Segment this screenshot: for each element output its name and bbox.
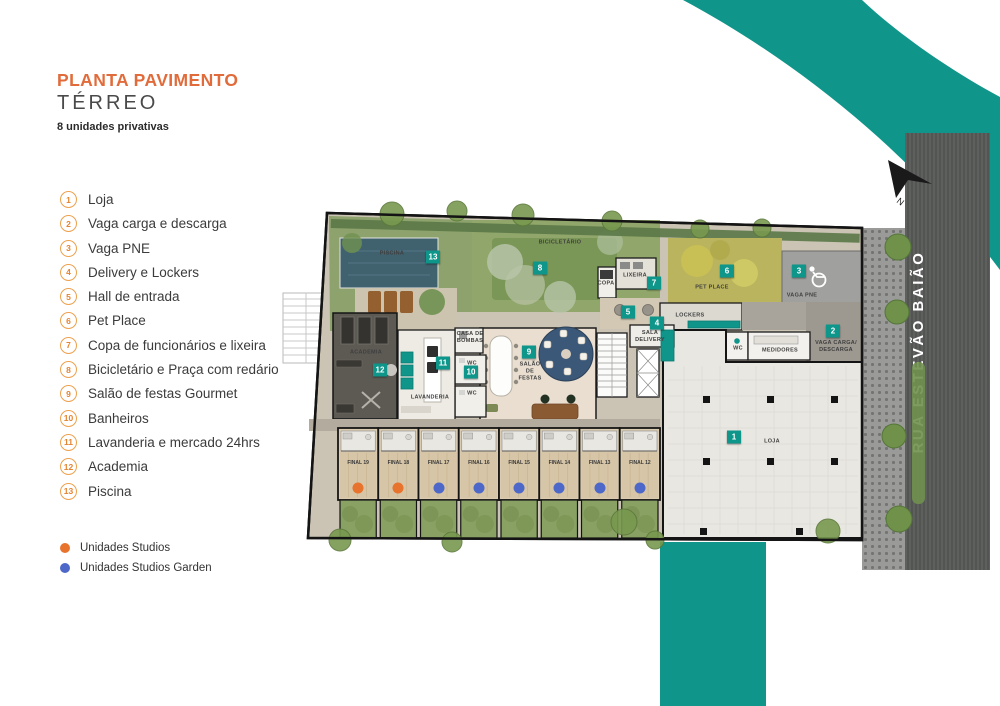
unit-type-dot-icon (60, 563, 70, 573)
legend-item: 9Salão de festas Gourmet (60, 385, 279, 402)
legend-number-badge: 12 (60, 458, 77, 475)
legend-item: 8Bicicletário e Praça com redário (60, 361, 279, 378)
legend-item: 12Academia (60, 458, 279, 475)
legend-item: 11Lavanderia e mercado 24hrs (60, 434, 279, 451)
compass-label: N (895, 196, 906, 208)
legend-number-badge: 13 (60, 483, 77, 500)
legend-label: Vaga PNE (88, 241, 150, 256)
street-tree-icons (882, 234, 912, 532)
legend-label: Hall de entrada (88, 289, 180, 304)
legend-label: Delivery e Lockers (88, 265, 199, 280)
legend-item: 4Delivery e Lockers (60, 264, 279, 281)
legend-number-badge: 8 (60, 361, 77, 378)
legend-list: 1Loja2Vaga carga e descarga3Vaga PNE4Del… (60, 191, 279, 507)
unit-type-item: Unidades Studios (60, 542, 212, 554)
legend-number-badge: 11 (60, 434, 77, 451)
legend-label: Copa de funcionários e lixeira (88, 338, 266, 353)
legend-item: 10Banheiros (60, 410, 279, 427)
legend-item: 13Piscina (60, 483, 279, 500)
legend-number-badge: 6 (60, 312, 77, 329)
unit-type-dot-icon (60, 543, 70, 553)
legend-item: 2Vaga carga e descarga (60, 215, 279, 232)
legend-number-badge: 4 (60, 264, 77, 281)
page-caption: 8 unidades privativas (57, 121, 238, 133)
legend-number-badge: 3 (60, 240, 77, 257)
legend-label: Vaga carga e descarga (88, 216, 227, 231)
legend-number-badge: 9 (60, 385, 77, 402)
legend-label: Salão de festas Gourmet (88, 386, 237, 401)
legend-label: Piscina (88, 484, 132, 499)
unit-type-label: Unidades Studios Garden (80, 562, 212, 574)
legend-label: Banheiros (88, 411, 149, 426)
legend-item: 7Copa de funcionários e lixeira (60, 337, 279, 354)
legend-number-badge: 1 (60, 191, 77, 208)
legend-item: 6Pet Place (60, 312, 279, 329)
legend-number-badge: 5 (60, 288, 77, 305)
page-title: PLANTA PAVIMENTO (57, 70, 238, 91)
page-subtitle: TÉRREO (57, 92, 238, 115)
north-arrow-icon (888, 160, 932, 198)
legend-item: 5Hall de entrada (60, 288, 279, 305)
unit-type-item: Unidades Studios Garden (60, 562, 212, 574)
legend-number-badge: 7 (60, 337, 77, 354)
north-arrow: N (872, 150, 942, 208)
legend-label: Academia (88, 459, 148, 474)
title-block: PLANTA PAVIMENTO TÉRREO 8 unidades priva… (57, 70, 238, 133)
legend-number-badge: 10 (60, 410, 77, 427)
legend-number-badge: 2 (60, 215, 77, 232)
floor-plan-page: RUA ESTEVÃO BAIÃO PLANTA PAVIMENTO TÉRRE… (0, 0, 1000, 706)
legend-label: Pet Place (88, 313, 146, 328)
legend-label: Lavanderia e mercado 24hrs (88, 435, 260, 450)
unit-type-label: Unidades Studios (80, 542, 170, 554)
legend-label: Loja (88, 192, 114, 207)
floor-plan-art (275, 185, 975, 580)
unit-type-legend: Unidades StudiosUnidades Studios Garden (60, 542, 212, 582)
legend-item: 1Loja (60, 191, 279, 208)
legend-label: Bicicletário e Praça com redário (88, 362, 279, 377)
legend-item: 3Vaga PNE (60, 240, 279, 257)
